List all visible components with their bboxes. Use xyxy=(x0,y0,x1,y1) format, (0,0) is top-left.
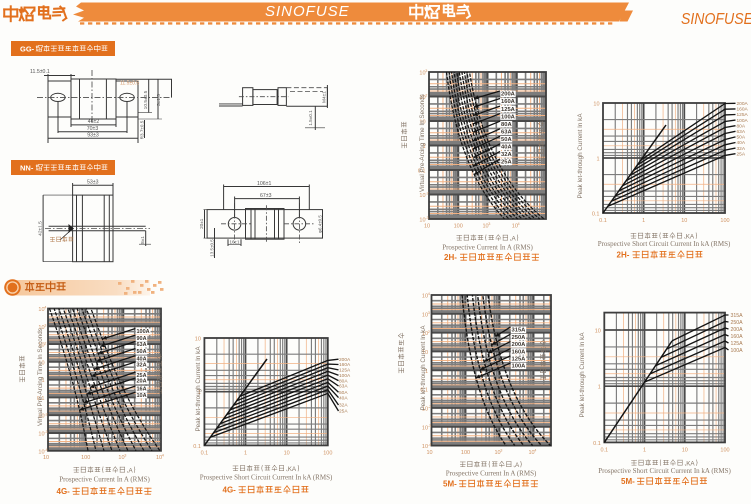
svg-text:Peak let-through Current In kA: Peak let-through Current In kA xyxy=(195,346,202,432)
svg-text:Peak let-through Current In kA: Peak let-through Current In kA xyxy=(577,113,584,199)
svg-text:40A: 40A xyxy=(737,140,746,146)
svg-text:100: 100 xyxy=(81,455,90,461)
svg-text:3: 3 xyxy=(124,454,126,458)
svg-text:2H-: 2H- xyxy=(444,253,457,262)
svg-text:63A: 63A xyxy=(737,129,746,135)
svg-text:100A: 100A xyxy=(737,118,749,124)
svg-text:63A: 63A xyxy=(501,129,512,135)
svg-text:25A: 25A xyxy=(339,409,348,415)
svg-text:10: 10 xyxy=(284,451,290,457)
svg-text:90A: 90A xyxy=(137,336,147,342)
svg-text:3: 3 xyxy=(488,222,490,226)
svg-text:0.1: 0.1 xyxy=(201,451,209,457)
svg-text:10A: 10A xyxy=(137,393,147,399)
svg-text:50A: 50A xyxy=(737,135,746,141)
svg-text:50A: 50A xyxy=(501,137,512,143)
svg-text:125A: 125A xyxy=(512,357,527,363)
svg-text:32A: 32A xyxy=(339,403,348,409)
svg-text:100: 100 xyxy=(720,448,729,454)
svg-text:32A: 32A xyxy=(737,146,746,152)
svg-text:80A: 80A xyxy=(501,122,512,128)
svg-text:63A: 63A xyxy=(339,384,348,390)
svg-text:A: A xyxy=(512,235,517,242)
svg-text:4: 4 xyxy=(534,449,537,453)
svg-text:Prospective Current In A (RMS): Prospective Current In A (RMS) xyxy=(59,476,150,484)
svg-text:0.1: 0.1 xyxy=(593,441,601,447)
svg-text:32A: 32A xyxy=(137,363,147,369)
svg-text:125A: 125A xyxy=(501,107,516,113)
svg-text:KA: KA xyxy=(288,466,297,473)
svg-text:-2: -2 xyxy=(44,412,47,416)
svg-text:2H-: 2H- xyxy=(617,250,630,259)
svg-text:4: 4 xyxy=(428,292,431,296)
svg-text:10: 10 xyxy=(427,450,433,456)
svg-text:Prospective Short Circuit Curr: Prospective Short Circuit Current In kA … xyxy=(598,467,731,475)
svg-text:100A: 100A xyxy=(137,329,150,335)
svg-text:160A: 160A xyxy=(339,362,351,368)
svg-text:-3: -3 xyxy=(44,430,47,434)
svg-text:10: 10 xyxy=(595,329,601,335)
svg-text:-2: -2 xyxy=(428,405,431,409)
svg-text:40A: 40A xyxy=(339,395,348,401)
svg-text:1: 1 xyxy=(642,218,645,224)
svg-text:100A: 100A xyxy=(731,348,744,354)
svg-text:Prospective Short Circuit Curr: Prospective Short Circuit Current In kA … xyxy=(598,240,731,248)
svg-text:4G-: 4G- xyxy=(57,487,71,496)
svg-text:3: 3 xyxy=(428,311,430,315)
svg-text:16A: 16A xyxy=(137,387,147,393)
svg-text:100: 100 xyxy=(323,451,332,457)
svg-text:80A: 80A xyxy=(737,123,746,129)
svg-text:25A: 25A xyxy=(501,160,512,166)
svg-text:A: A xyxy=(515,462,520,469)
svg-text:200A: 200A xyxy=(737,101,749,107)
svg-text:40A: 40A xyxy=(137,356,147,362)
svg-text:10: 10 xyxy=(43,455,49,461)
svg-text:200A: 200A xyxy=(512,342,527,348)
svg-text:A: A xyxy=(129,467,134,474)
svg-text:100: 100 xyxy=(720,218,729,224)
svg-text:2: 2 xyxy=(44,341,46,345)
svg-text:4: 4 xyxy=(518,222,521,226)
svg-text:2: 2 xyxy=(428,330,430,334)
svg-text:40A: 40A xyxy=(501,145,512,151)
svg-text:50A: 50A xyxy=(137,349,147,355)
svg-text:100A: 100A xyxy=(501,114,516,120)
svg-text:5M-: 5M- xyxy=(443,479,457,488)
svg-text:0.1: 0.1 xyxy=(600,448,608,454)
svg-text:200A: 200A xyxy=(501,92,516,98)
svg-text:315A: 315A xyxy=(512,328,527,334)
svg-text:1: 1 xyxy=(598,385,601,391)
svg-text:25A: 25A xyxy=(737,151,746,157)
svg-text:0.1: 0.1 xyxy=(599,218,607,224)
svg-text:3: 3 xyxy=(425,69,427,73)
svg-text:-3: -3 xyxy=(425,216,428,220)
svg-text:10: 10 xyxy=(424,224,430,230)
svg-text:Virtual Pre-Arcing Time In Sec: Virtual Pre-Arcing Time In Seconds xyxy=(37,328,44,426)
svg-text:1: 1 xyxy=(643,448,646,454)
svg-text:250A: 250A xyxy=(512,335,527,341)
svg-text:100A: 100A xyxy=(512,364,527,370)
svg-text:100: 100 xyxy=(461,450,470,456)
svg-text:Prospective Short Circuit Curr: Prospective Short Circuit Current In kA … xyxy=(200,474,333,482)
svg-text:0.1: 0.1 xyxy=(592,212,600,218)
svg-text:160A: 160A xyxy=(501,99,516,105)
svg-text:10: 10 xyxy=(681,218,687,224)
svg-text:100A: 100A xyxy=(339,373,351,379)
svg-text:250A: 250A xyxy=(731,320,744,326)
svg-text:50A: 50A xyxy=(339,390,348,396)
svg-text:63A: 63A xyxy=(137,342,147,348)
svg-text:20A: 20A xyxy=(137,379,147,385)
svg-text:125A: 125A xyxy=(737,112,749,118)
svg-text:Prospective Current In A (RMS): Prospective Current In A (RMS) xyxy=(442,244,533,252)
svg-text:-3: -3 xyxy=(428,424,431,428)
svg-text:Virtual Pre-Arcing Time In Sec: Virtual Pre-Arcing Time In Seconds xyxy=(419,94,426,192)
svg-text:3: 3 xyxy=(500,449,502,453)
svg-text:4G-: 4G- xyxy=(223,485,237,494)
svg-text:125A: 125A xyxy=(731,341,744,347)
svg-text:4: 4 xyxy=(162,454,165,458)
svg-text:100: 100 xyxy=(454,224,463,230)
svg-text:200A: 200A xyxy=(731,327,744,333)
svg-text:10: 10 xyxy=(195,337,201,343)
svg-text:160A: 160A xyxy=(731,334,744,340)
svg-text:10: 10 xyxy=(682,448,688,454)
svg-text:160A: 160A xyxy=(737,107,749,113)
svg-text:125A: 125A xyxy=(339,368,351,374)
svg-text:0.1: 0.1 xyxy=(193,444,201,450)
svg-text:80A: 80A xyxy=(339,378,348,384)
svg-text:1: 1 xyxy=(596,157,599,163)
svg-text:5M-: 5M- xyxy=(621,477,635,486)
svg-text:315A: 315A xyxy=(731,313,744,319)
svg-text:32A: 32A xyxy=(501,152,512,158)
svg-text:4: 4 xyxy=(44,306,47,310)
svg-text:3: 3 xyxy=(44,324,46,328)
svg-text:Peak let-through Current In kA: Peak let-through Current In kA xyxy=(420,325,427,411)
svg-text:10: 10 xyxy=(593,102,599,108)
svg-text:Peak let-through Current In kA: Peak let-through Current In kA xyxy=(579,332,586,418)
svg-text:160A: 160A xyxy=(512,349,527,355)
svg-text:Prospective Current In A (RMS): Prospective Current In A (RMS) xyxy=(446,470,537,478)
svg-text:1: 1 xyxy=(244,451,247,457)
svg-text:200A: 200A xyxy=(339,357,351,363)
